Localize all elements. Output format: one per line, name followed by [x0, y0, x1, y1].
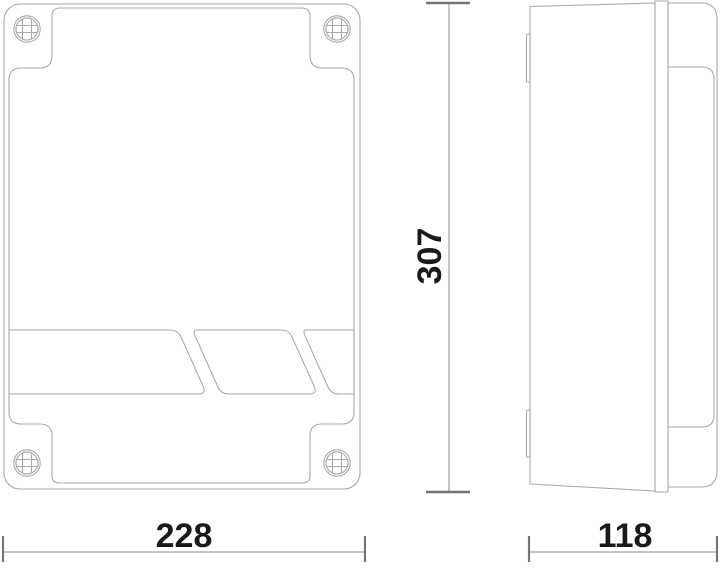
lid-outer-outline — [4, 4, 360, 489]
height-dimension-label: 307 — [411, 228, 449, 285]
technical-drawing-page: 307 228 118 — [0, 0, 720, 570]
box-body-side — [530, 3, 655, 491]
side-view — [527, 1, 718, 492]
depth-dimension-label: 118 — [598, 517, 653, 555]
width-dimension-label: 228 — [156, 517, 213, 555]
lid-flange-side — [655, 1, 668, 492]
lid-cover-side — [668, 3, 717, 487]
enclosure-dimension-drawing: 307 228 118 — [0, 0, 720, 570]
front-view — [4, 4, 360, 489]
